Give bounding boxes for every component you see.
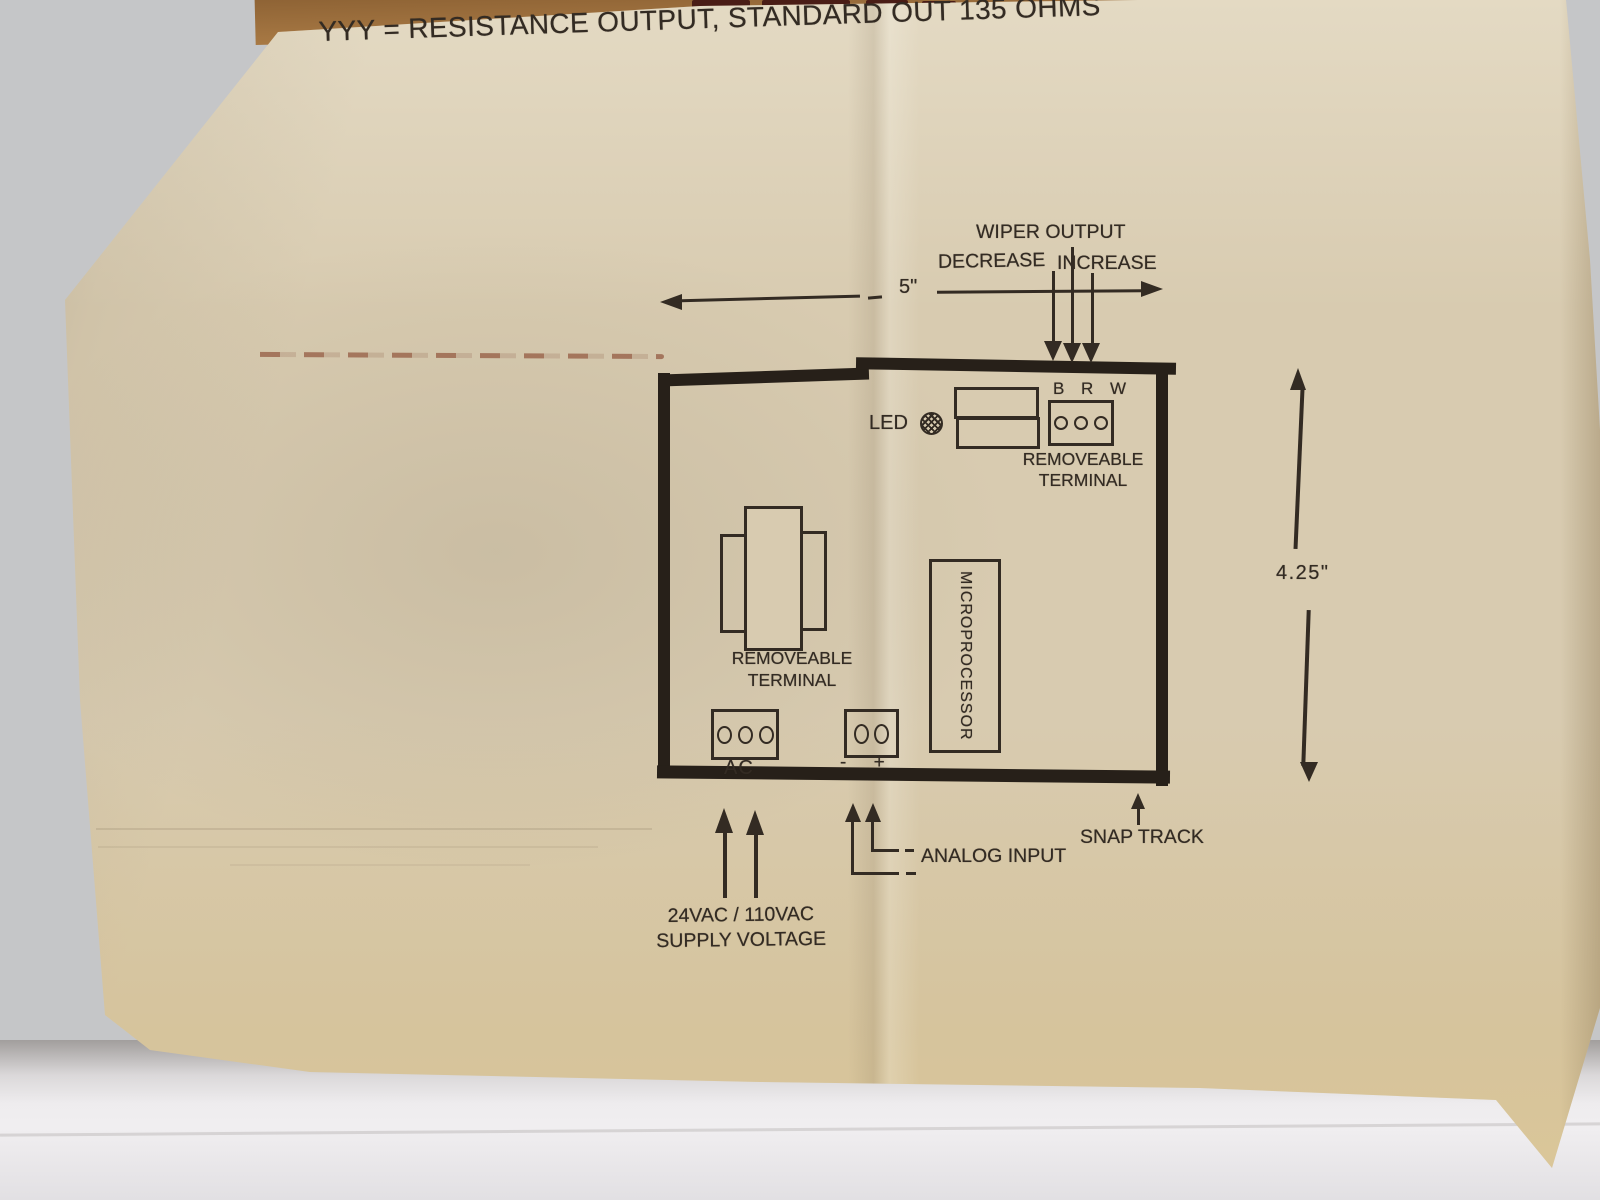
supply-arrow-line	[723, 831, 727, 898]
analog-input-dash	[905, 849, 914, 852]
led-icon	[920, 412, 943, 435]
relay-block-upper	[954, 387, 1039, 419]
wiper-output-arrowhead	[1063, 343, 1081, 363]
bottom-terminal-caption: REMOVEABLE TERMINAL	[716, 647, 868, 691]
caption-line: SUPPLY VOLTAGE	[656, 928, 826, 952]
paper-crease-streak	[96, 828, 652, 830]
wiper-output-arrow-line	[1071, 247, 1074, 345]
board-outline-right	[1156, 366, 1168, 786]
analog-input-elbow	[871, 849, 899, 852]
relay-block-lower	[956, 417, 1040, 449]
top-terminal-caption: REMOVEABLE TERMINAL	[1008, 449, 1158, 491]
analog-input-dash	[906, 872, 916, 875]
analog-input-elbow	[851, 872, 899, 875]
brw-pin-labels: B R W	[1053, 379, 1132, 399]
terminal-pin	[1094, 416, 1108, 430]
analog-input-arrow-line	[851, 820, 854, 875]
analog-terminal-block	[844, 709, 899, 758]
height-dimension-arrowhead-down	[1300, 762, 1318, 782]
width-dimension-arrowhead-right	[1141, 281, 1163, 297]
terminal-pin	[759, 726, 774, 744]
paper-crease-streak	[230, 864, 530, 866]
microprocessor-chip: MICROPROCESSOR	[929, 559, 1001, 753]
board-outline-left	[658, 373, 670, 777]
caption-line: 24VAC / 110VAC	[668, 903, 815, 927]
terminal-pin	[854, 724, 869, 744]
microprocessor-label: MICROPROCESSOR	[956, 571, 974, 741]
caption-line: REMOVEABLE	[732, 648, 853, 668]
photo-of-wiring-diagram: YYY = RESISTANCE OUTPUT, STANDARD OUT 13…	[0, 0, 1600, 1200]
caption-line: REMOVEABLE	[1023, 449, 1144, 469]
led-label: LED	[869, 412, 908, 435]
supply-arrowhead	[746, 810, 764, 835]
top-terminal-block	[1048, 400, 1114, 446]
analog-input-label: ANALOG INPUT	[921, 845, 1066, 868]
supply-arrow-line	[754, 833, 758, 898]
decrease-label: DECREASE	[938, 249, 1046, 274]
height-dimension-arrowhead-up	[1290, 368, 1306, 390]
width-dimension-label: 5"	[899, 276, 917, 299]
height-dimension-label: 4.25"	[1276, 562, 1330, 585]
paper-crease-streak	[98, 846, 598, 848]
increase-arrowhead	[1082, 343, 1100, 363]
terminal-pin	[738, 726, 753, 744]
increase-arrow-line	[1091, 273, 1094, 345]
terminal-pin	[874, 724, 889, 744]
snap-track-label: SNAP TRACK	[1080, 826, 1204, 849]
snap-track-arrow-line	[1137, 807, 1140, 825]
polarity-label: - +	[840, 752, 896, 774]
terminal-pin	[717, 726, 732, 744]
caption-line: TERMINAL	[1039, 470, 1127, 490]
analog-input-arrow-line	[871, 820, 874, 852]
decrease-arrowhead	[1044, 341, 1062, 361]
caption-line: TERMINAL	[748, 670, 836, 690]
supply-arrowhead	[715, 808, 733, 833]
supply-voltage-label: 24VAC / 110VAC SUPPLY VOLTAGE	[652, 902, 831, 954]
terminal-pin	[1054, 416, 1068, 430]
ac-label: AC	[724, 757, 754, 780]
ac-terminal-block	[711, 709, 779, 760]
terminal-pin	[1074, 416, 1088, 430]
wiper-output-label: WIPER OUTPUT	[976, 221, 1126, 244]
transformer-core	[744, 506, 803, 651]
decrease-arrow-line	[1052, 271, 1055, 345]
